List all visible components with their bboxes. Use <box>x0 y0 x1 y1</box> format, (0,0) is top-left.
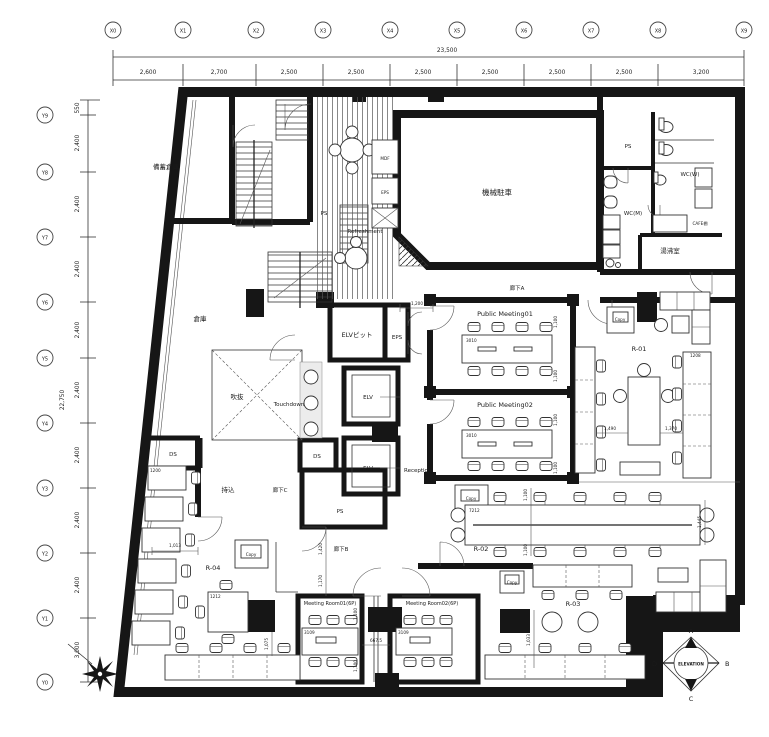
dim-1033: 1,033 <box>526 634 531 646</box>
desk-size-label: 1200 <box>150 468 161 473</box>
left-dimension-strip: 550 2,400 2,400 2,400 2,400 2,400 2,400 … <box>37 100 100 690</box>
room-label-eps: EPS <box>381 190 389 195</box>
x-dim: 2,600 <box>140 70 157 76</box>
grid-label: Y8 <box>41 171 48 177</box>
dim-1100: 1,100 <box>523 544 528 556</box>
wc-fixtures <box>603 118 714 268</box>
y-grid-bubbles: Y9 Y8 Y7 Y6 Y5 Y4 Y3 Y2 Y1 Y0 <box>37 107 53 690</box>
dim-1370: 1,370 <box>665 426 677 431</box>
grid-label: Y9 <box>41 114 48 120</box>
room-label-r01: R-01 <box>632 345 647 353</box>
table-size-label: 3010 <box>466 433 477 438</box>
table-size-label: 3010 <box>466 338 477 343</box>
compass-label: ELEVATION <box>678 662 704 667</box>
room-label-meeting-room02: Meeting Room02(6P) <box>406 601 458 607</box>
x-total-dim: 23,500 <box>437 48 458 54</box>
grid-label: X3 <box>320 29 327 35</box>
y-dim: 2,400 <box>75 321 81 338</box>
grid-label: X9 <box>741 29 748 35</box>
y-dim: 2,400 <box>75 381 81 398</box>
room-label-ps: PS <box>625 144 632 150</box>
room-label-yuwakashi: 湯沸室 <box>660 246 680 255</box>
room-label-meeting-room01: Meeting Room01(6P) <box>304 601 356 607</box>
room-label-ps: PS <box>337 509 344 515</box>
y-dim: 2,400 <box>75 576 81 593</box>
room-label-elv: ELV <box>363 466 373 472</box>
floor-plan-canvas: 23,500 2,600 2,700 2,500 2,500 2,500 2,5… <box>0 0 769 737</box>
copy-machine-label: Copy <box>246 552 257 557</box>
y-dim: 2,400 <box>75 134 81 151</box>
grid-label: Y2 <box>41 552 48 558</box>
y-dim: 3,000 <box>75 641 81 658</box>
room-label-wc-m: WC(M) <box>624 211 642 217</box>
room-label-r04: R-04 <box>206 564 221 572</box>
grid-label: X7 <box>588 29 595 35</box>
grid-label: Y0 <box>41 681 48 687</box>
floor-plan-drawing: 23,500 2,600 2,700 2,500 2,500 2,500 2,5… <box>0 0 769 737</box>
grid-label: X2 <box>253 29 260 35</box>
room-label-bichiku-soko: 備蓄倉庫 <box>153 162 180 171</box>
room-label-ps: PS <box>321 211 328 217</box>
room-label-eps: EPS <box>392 335 403 341</box>
dim-667-5: 667.5 <box>370 638 382 643</box>
room-label-ds: DS <box>169 452 177 458</box>
grid-label: X6 <box>521 29 528 35</box>
grid-label: Y3 <box>41 487 48 493</box>
y-dim: 2,400 <box>75 260 81 277</box>
dim-1100: 1,100 <box>353 660 358 672</box>
x-dim: 2,500 <box>415 70 432 76</box>
y-dim: 2,400 <box>75 195 81 212</box>
dim-1100: 1,100 <box>553 414 558 426</box>
grid-label: X5 <box>454 29 461 35</box>
room-label-mdf: MDF <box>380 156 390 161</box>
copy-machine-label: Copy <box>615 317 626 322</box>
room-label-public-meeting02: Public Meeting02 <box>477 401 533 409</box>
room-label-rouka-a: 廊下A <box>510 284 525 292</box>
grid-label: X8 <box>655 29 662 35</box>
x-grid-bubbles: X0 X1 X2 X3 X4 X5 X6 X7 X8 X9 <box>105 22 752 38</box>
elevation-compass: ELEVATION A B C D <box>652 627 729 703</box>
room-label-r03: R-03 <box>566 600 581 608</box>
room-label-rouka-b: 廊下B <box>334 545 349 553</box>
dim-1420: 1,420 <box>318 543 323 555</box>
grid-label: Y6 <box>41 301 48 307</box>
x-dim: 2,500 <box>281 70 298 76</box>
grid-label: Y7 <box>41 236 48 242</box>
room-label-public-meeting01: Public Meeting01 <box>477 310 533 318</box>
y-dim: 550 <box>75 102 81 113</box>
grid-label: Y5 <box>41 357 48 363</box>
dim-1100: 1,100 <box>553 316 558 328</box>
table-size-label: 3109 <box>398 630 409 635</box>
grid-label: Y4 <box>41 422 48 428</box>
room-label-reception: Reception <box>404 468 432 474</box>
desk-size-label: 1208 <box>690 353 701 358</box>
room-label-ds: DS <box>313 454 321 460</box>
x-dim: 2,500 <box>482 70 499 76</box>
x-dim: 2,500 <box>616 70 633 76</box>
copy-machine-label: Copy <box>507 580 518 585</box>
room-label-cafe-tana: CAFE棚 <box>692 220 707 227</box>
dim-1490: 1,490 <box>604 426 616 431</box>
y-total-dim: 22,750 <box>60 390 66 411</box>
room-label-r02: R-02 <box>474 545 489 553</box>
room-label-fukinuke: 吹抜 <box>231 392 245 401</box>
copy-machine-label: Copy <box>466 496 477 501</box>
grid-label: X4 <box>387 29 394 35</box>
room-label-touchdown: Touchdown <box>273 402 305 408</box>
dim-1100: 1,100 <box>553 370 558 382</box>
table-size-label: 7212 <box>469 508 480 513</box>
x-dim: 3,200 <box>693 70 710 76</box>
dim-1100: 1,100 <box>553 462 558 474</box>
room-label-mochikomi: 持込 <box>222 485 236 494</box>
dim-1100: 1,100 <box>353 608 358 620</box>
y-dim: 2,400 <box>75 446 81 463</box>
grid-label: X0 <box>110 29 117 35</box>
room-label-elv-pit: ELVピット <box>342 331 373 339</box>
compass-a: A <box>689 627 694 635</box>
dim-1075: 1,075 <box>264 638 269 650</box>
room-label-refreshment: Refreshment <box>347 229 383 235</box>
dim-1445: 1,445 <box>697 516 702 528</box>
columns <box>245 289 660 687</box>
room-label-soko: 倉庫 <box>194 314 208 323</box>
dim-1170: 1,170 <box>318 575 323 587</box>
dim-1013: 1,013 <box>169 543 181 548</box>
compass-b: B <box>725 660 729 668</box>
x-dim: 2,500 <box>348 70 365 76</box>
x-dim: 2,700 <box>211 70 228 76</box>
x-dim: 2,500 <box>549 70 566 76</box>
y-dim: 2,400 <box>75 511 81 528</box>
room-label-wc-w: WC(W) <box>680 172 699 178</box>
grid-label: Y1 <box>41 617 48 623</box>
compass-c: C <box>689 695 694 703</box>
dim-1200: 1,200 <box>411 301 423 306</box>
top-dimension-strip: 23,500 2,600 2,700 2,500 2,500 2,500 2,5… <box>105 22 752 86</box>
grid-label: X1 <box>180 29 187 35</box>
room-label-elv: ELV <box>363 395 373 401</box>
room-label-kikai-chusha: 機械駐車 <box>482 187 512 197</box>
room-label-rouka-c: 廊下C <box>273 486 288 494</box>
table-size-label: 1212 <box>210 594 221 599</box>
dim-1100: 1,100 <box>523 489 528 501</box>
table-size-label: 3109 <box>304 630 315 635</box>
compass-d: D <box>652 660 657 668</box>
